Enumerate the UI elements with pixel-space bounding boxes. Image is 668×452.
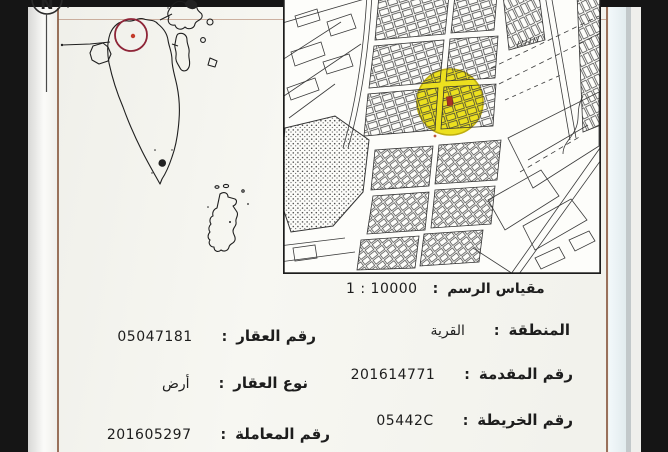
field-colon: : (494, 323, 500, 339)
location-dot (131, 34, 135, 38)
hawar-islands (208, 193, 237, 252)
field-label: رقم العقار (236, 327, 316, 345)
field-label: رقم المقدمة (479, 365, 573, 383)
map-scale: مقياس الرسم : 10000 : 1 (346, 281, 545, 297)
field-colon: : (221, 427, 227, 443)
scanned-document-screen: N (0, 0, 668, 452)
field-value: القرية (431, 323, 465, 339)
field-row-property-type: نوع العقار : أرض (162, 374, 308, 392)
north-letter: N (40, 0, 53, 13)
field-row-property-number: رقم العقار : 05047181 (117, 327, 316, 345)
field-colon: : (222, 329, 228, 345)
field-value: 05047181 (117, 329, 192, 345)
sitra-island (175, 33, 190, 71)
field-row-map-number: رقم الخريطة : 05442C (376, 411, 573, 429)
field-value: أرض (162, 376, 190, 392)
scale-colon: : (433, 281, 439, 297)
marker-speck (434, 135, 437, 138)
document-frame-right (606, 7, 608, 452)
field-colon: : (219, 376, 225, 392)
field-row-transaction-number: رقم المعاملة : 201605297 (107, 425, 330, 443)
bahrain-overview-map (60, 0, 290, 290)
page-right-edge (609, 7, 626, 452)
field-label: المنطقة (509, 321, 570, 339)
page-right-edge-margin (631, 7, 641, 452)
field-value: 201605297 (107, 427, 192, 443)
field-colon: : (463, 413, 469, 429)
field-row-region: المنطقة : القرية (431, 321, 570, 339)
property-marker (447, 96, 453, 106)
location-circle (115, 19, 147, 51)
field-colon: : (464, 367, 470, 383)
field-value: 201614771 (351, 367, 436, 383)
field-value: 05442C (376, 413, 433, 429)
scale-value: 10000 : 1 (346, 281, 418, 297)
field-label: رقم الخريطة (477, 411, 573, 429)
scale-label: مقياس الرسم (447, 281, 544, 297)
field-row-application-number: رقم المقدمة : 201614771 (351, 365, 573, 383)
cadastral-map (283, 0, 601, 274)
field-label: رقم المعاملة (235, 425, 330, 443)
field-label: نوع العقار (233, 374, 308, 392)
map-specks (61, 0, 249, 223)
